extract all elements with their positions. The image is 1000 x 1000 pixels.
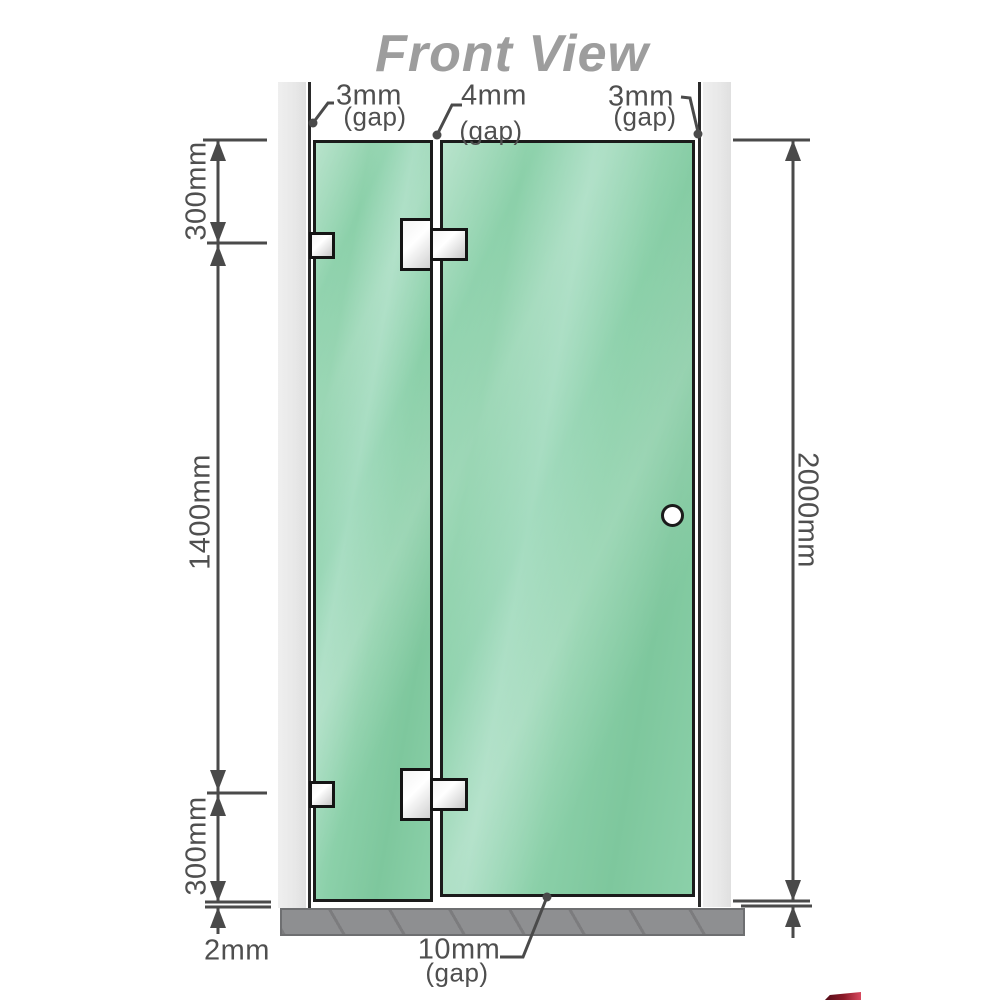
dimension-label-bottom-300mm: 300mm: [181, 796, 214, 895]
gap-label-middle-value: 4mm: [461, 80, 527, 113]
gap-label-middle-unit: (gap): [459, 116, 522, 147]
dimension-label-top-300mm: 300mm: [181, 141, 214, 240]
gap-label-bottom-unit: (gap): [425, 958, 488, 989]
wall-bracket-bottom: [309, 781, 335, 808]
corner-logo-sliver: [823, 992, 861, 1000]
wall-right-inner-edge: [698, 82, 701, 907]
hinge-bottom-right-plate: [430, 778, 468, 811]
gap-label-left-unit: (gap): [343, 102, 406, 133]
dimension-label-2000mm: 2000mm: [791, 452, 824, 568]
diagram-title: Front View: [375, 24, 649, 84]
wall-right: [703, 82, 731, 907]
gap-label-right-unit: (gap): [613, 102, 676, 133]
dimension-label-2mm: 2mm: [204, 935, 270, 968]
shower-screen-front-view-diagram: Front View: [0, 0, 1000, 1000]
wall-bracket-top: [309, 232, 335, 259]
floor-bar: [280, 908, 745, 936]
dimension-label-1400mm: 1400mm: [185, 454, 218, 570]
door-handle-knob: [661, 504, 684, 527]
door-glass-panel: [440, 140, 695, 897]
hinge-top-right-plate: [430, 228, 468, 261]
wall-left: [278, 82, 306, 908]
